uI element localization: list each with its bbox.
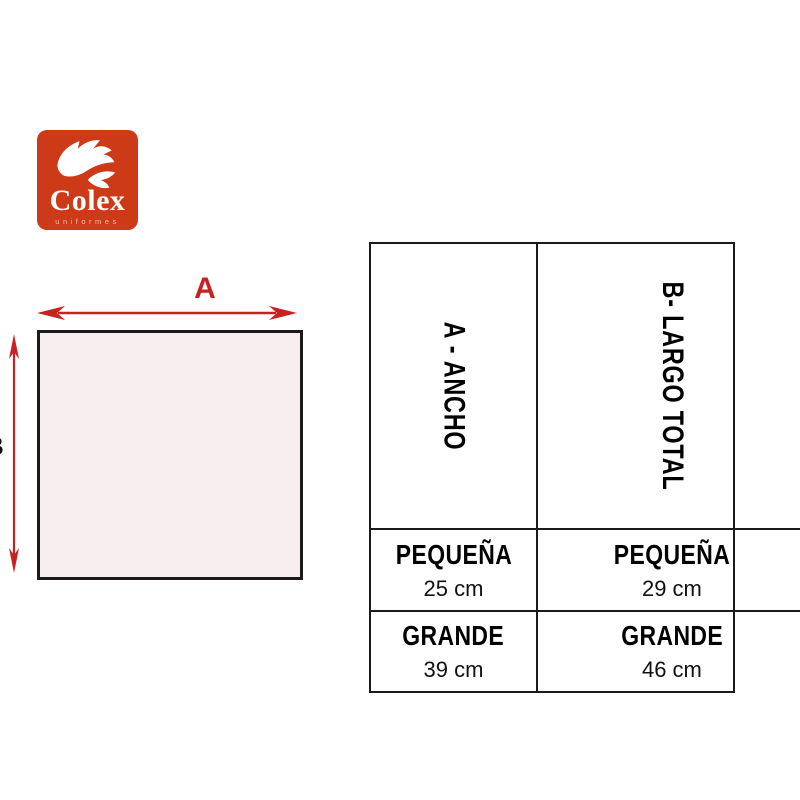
- size-label: GRANDE: [621, 622, 723, 650]
- brand-tagline: uniformes: [55, 217, 119, 226]
- height-dimension-label: B: [0, 431, 4, 462]
- width-arrow: [36, 304, 298, 322]
- table-header-largo-label: B- LARGO TOTAL: [655, 282, 689, 491]
- size-label: PEQUEÑA: [614, 541, 730, 569]
- brand-logo: Colex uniformes: [37, 130, 138, 230]
- width-dimension-label: A: [190, 272, 220, 306]
- size-value: 46 cm: [642, 659, 702, 681]
- size-label: PEQUEÑA: [395, 541, 511, 569]
- table-cell-ancho-grande: GRANDE 39 cm: [371, 610, 538, 691]
- table-header-ancho: A - ANCHO: [371, 244, 538, 528]
- height-arrow: [5, 333, 23, 574]
- table-cell-largo-grande: GRANDE 46 cm: [538, 610, 800, 691]
- size-table: A - ANCHO B- LARGO TOTAL PEQUEÑA 25 cm P…: [369, 242, 735, 693]
- brand-name: Colex: [50, 188, 126, 214]
- table-header-largo: B- LARGO TOTAL: [538, 244, 800, 528]
- page: Colex uniformes A B A - ANCHO B- LARGO T…: [0, 0, 800, 800]
- table-header-ancho-label: A - ANCHO: [437, 322, 471, 451]
- size-value: 39 cm: [424, 659, 484, 681]
- product-shape: [37, 330, 303, 580]
- table-cell-largo-pequena: PEQUEÑA 29 cm: [538, 528, 800, 610]
- size-value: 29 cm: [642, 578, 702, 600]
- size-value: 25 cm: [424, 578, 484, 600]
- table-cell-ancho-pequena: PEQUEÑA 25 cm: [371, 528, 538, 610]
- size-label: GRANDE: [403, 622, 505, 650]
